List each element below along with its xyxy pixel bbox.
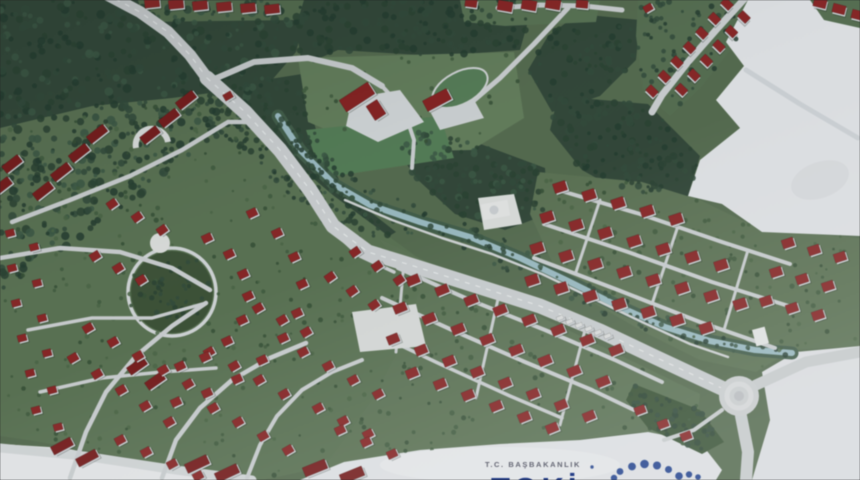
photo-overlay: [0, 0, 860, 480]
toki-master-plan-photo: T.C. BAŞBAKANLIK TOKİ: [0, 0, 860, 480]
master-plan-map: [0, 0, 860, 480]
